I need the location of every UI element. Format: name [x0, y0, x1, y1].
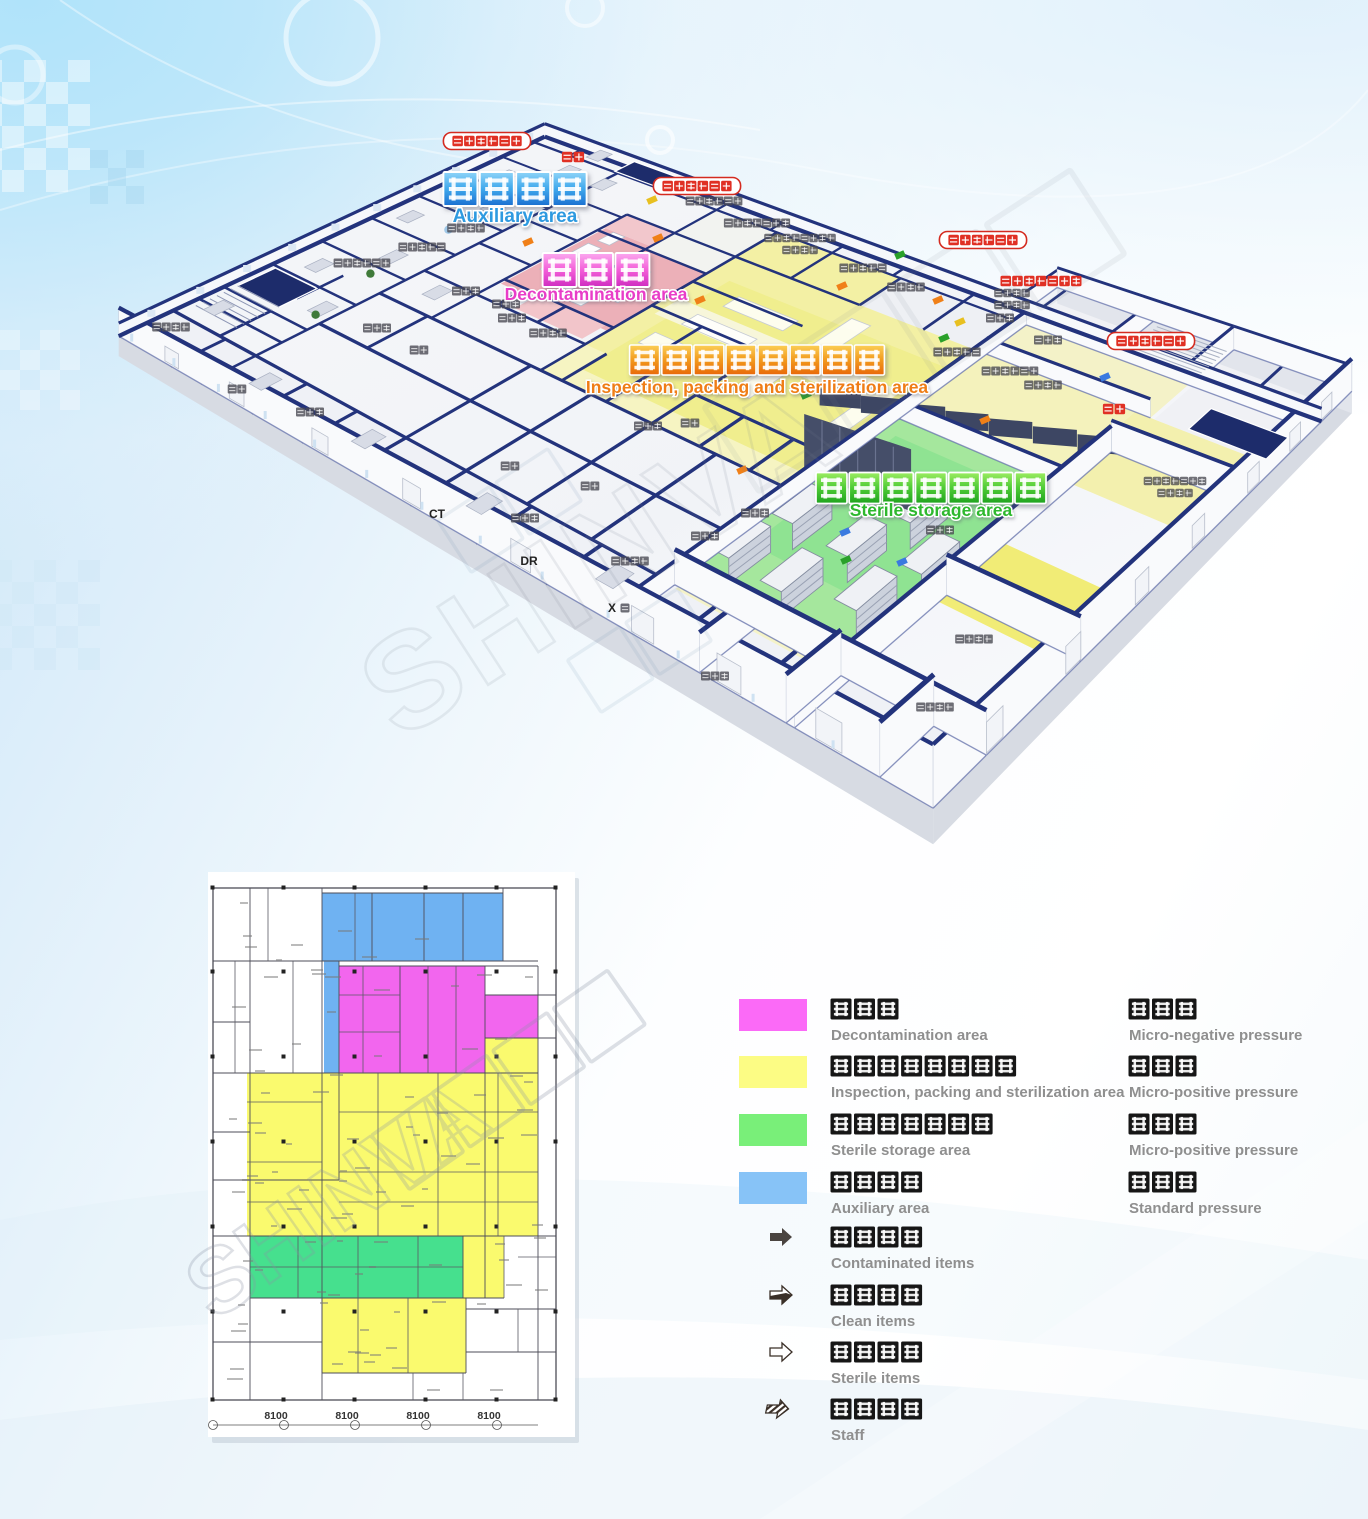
svg-text:8100: 8100 [406, 1410, 430, 1422]
svg-text:8100: 8100 [264, 1410, 288, 1422]
svg-text:Inspection, packing and steril: Inspection, packing and sterilization ar… [831, 1084, 1125, 1101]
svg-text:Staff: Staff [831, 1427, 865, 1444]
svg-text:Sterile items: Sterile items [831, 1370, 920, 1387]
svg-text:Decontamination area: Decontamination area [831, 1027, 988, 1044]
svg-text:Contaminated items: Contaminated items [831, 1255, 974, 1272]
svg-text:Auxiliary area: Auxiliary area [453, 206, 578, 227]
svg-text:CT: CT [429, 507, 446, 521]
svg-text:Standard pressure: Standard pressure [1129, 1200, 1262, 1217]
svg-text:Clean items: Clean items [831, 1313, 915, 1330]
svg-text:Sterile storage area: Sterile storage area [850, 500, 1013, 520]
svg-text:Micro-positive pressure: Micro-positive pressure [1129, 1142, 1298, 1159]
svg-text:Micro-positive pressure: Micro-positive pressure [1129, 1084, 1298, 1101]
svg-text:Auxiliary area: Auxiliary area [831, 1200, 930, 1217]
svg-text:Inspection, packing and steril: Inspection, packing and sterilization ar… [586, 377, 929, 397]
svg-text:X: X [608, 601, 616, 615]
svg-text:Micro-negative pressure: Micro-negative pressure [1129, 1027, 1302, 1044]
svg-text:Decontamination area: Decontamination area [505, 284, 688, 304]
svg-text:Sterile storage area: Sterile storage area [831, 1142, 971, 1159]
svg-text:8100: 8100 [335, 1410, 359, 1422]
svg-text:8100: 8100 [477, 1410, 501, 1422]
svg-text:DR: DR [520, 554, 538, 568]
